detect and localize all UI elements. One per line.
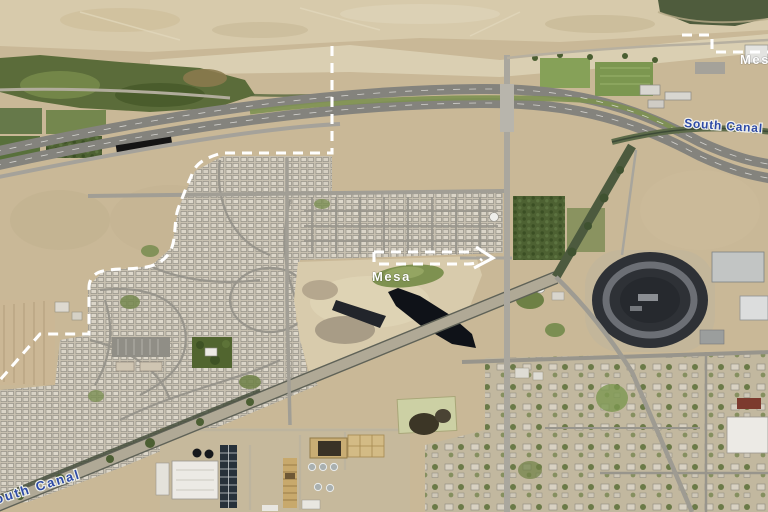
freeway-overpass — [500, 84, 514, 132]
satellite-map-view: Mesa Mesa South Canal South Canal — [0, 0, 768, 512]
red-building — [737, 398, 761, 409]
warehouse-right — [727, 417, 768, 453]
drying-beds — [283, 458, 297, 508]
satellite-map-canvas: Mesa Mesa South Canal South Canal — [0, 0, 768, 512]
race-track — [585, 250, 715, 352]
place-label-mesa-center: Mesa — [372, 269, 411, 284]
storage-tank — [490, 213, 499, 222]
place-label-mesa-top-right: Mesa — [740, 52, 768, 67]
sludge-pond — [318, 441, 341, 456]
